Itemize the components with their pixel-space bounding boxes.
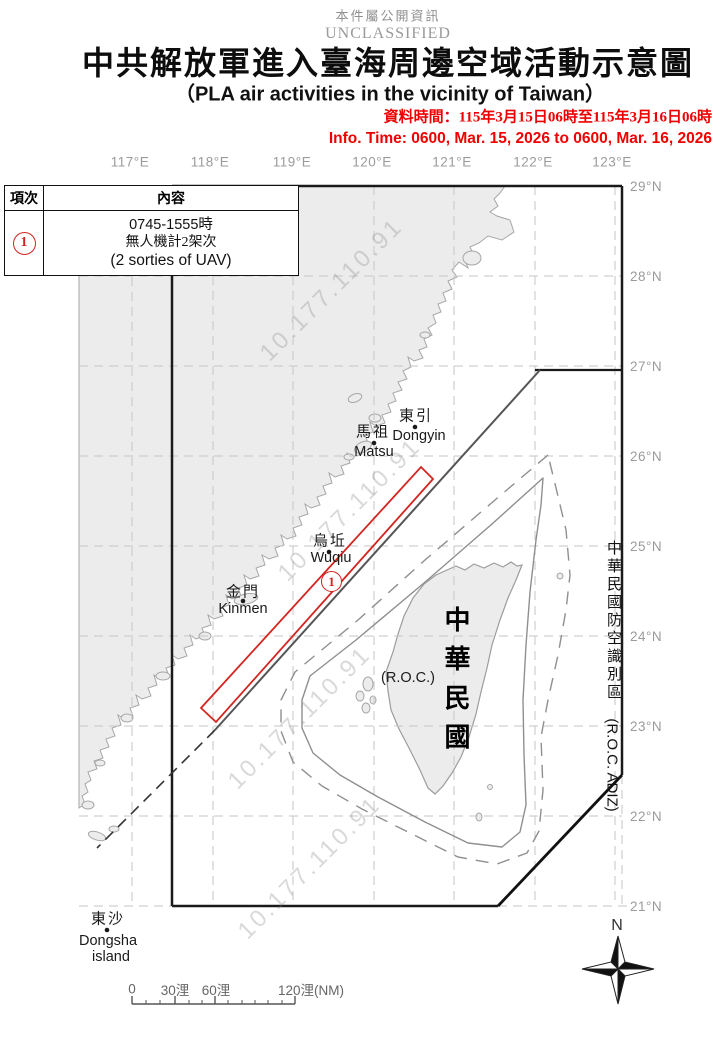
table-row-content: 0745-1555時 無人機計2架次 (2 sorties of UAV) bbox=[110, 216, 231, 271]
lat-label: 22°N bbox=[630, 809, 662, 824]
compass-north-label: N bbox=[611, 917, 623, 935]
screenshot-root: 10.177.110.91 10.177.110.91 10.177.110.9… bbox=[0, 0, 720, 1040]
page-title-en: （PLA air activities in the vicinity of T… bbox=[175, 78, 605, 107]
scale-label-120: 120浬(NM) bbox=[278, 979, 344, 999]
scale-label-60: 60浬 bbox=[202, 979, 231, 999]
kinmen-label-zh: 金門 bbox=[226, 581, 260, 602]
lat-label: 27°N bbox=[630, 359, 662, 374]
lat-label: 25°N bbox=[630, 539, 662, 554]
lat-label: 29°N bbox=[630, 179, 662, 194]
lon-label: 118°E bbox=[191, 155, 229, 170]
lat-label: 21°N bbox=[630, 899, 662, 914]
info-time-en: Info. Time: 0600, Mar. 15, 2026 to 0600,… bbox=[329, 130, 712, 148]
dongsha-label-en2: island bbox=[92, 949, 130, 965]
lat-label: 26°N bbox=[630, 449, 662, 464]
dongsha-label-zh: 東沙 bbox=[91, 908, 125, 929]
activity-desc-zh: 無人機計2架次 bbox=[110, 234, 231, 252]
lon-label: 119°E bbox=[273, 155, 311, 170]
wuqiu-label-en: Wuqiu bbox=[311, 550, 352, 566]
compass-rose-icon bbox=[582, 936, 654, 1004]
table-row-marker: 1 bbox=[13, 232, 36, 255]
lon-label: 122°E bbox=[513, 155, 552, 170]
lon-label: 120°E bbox=[352, 155, 391, 170]
lat-label: 28°N bbox=[630, 269, 662, 284]
matsu-label-en: Matsu bbox=[354, 444, 394, 460]
lat-label: 23°N bbox=[630, 719, 662, 734]
dongsha-label-en: Dongsha bbox=[79, 933, 137, 949]
table-header-no: 項次 bbox=[5, 186, 43, 211]
activity-desc-en: (2 sorties of UAV) bbox=[110, 251, 231, 270]
kinmen-label-en: Kinmen bbox=[218, 601, 267, 617]
wuqiu-label-zh: 烏坵 bbox=[313, 530, 347, 551]
taiwan-roc-label: (R.O.C.) bbox=[381, 670, 435, 686]
scale-label-0: 0 bbox=[128, 982, 136, 997]
dongyin-label-zh: 東引 bbox=[399, 405, 433, 426]
scale-label-30: 30浬 bbox=[161, 979, 190, 999]
taiwan-name-vertical: 中華民國 bbox=[437, 606, 474, 762]
activity-table: 項次 1 內容 0745-1555時 無人機計2架次 (2 sorties of… bbox=[4, 185, 299, 276]
info-time-zh: 資料時間：115年3月15日06時至115年3月16日06時 bbox=[384, 106, 712, 127]
dongyin-label-en: Dongyin bbox=[392, 428, 445, 444]
lat-label: 24°N bbox=[630, 629, 662, 644]
lon-label: 123°E bbox=[592, 155, 631, 170]
activity-time: 0745-1555時 bbox=[110, 216, 231, 234]
lon-label: 121°E bbox=[432, 155, 471, 170]
classification-banner-zh: 本件屬公開資訊 bbox=[335, 6, 440, 25]
adiz-label-zh: 中華民國防空識別區 bbox=[603, 540, 624, 702]
adiz-label-en: (R.O.C. ADIZ) bbox=[604, 718, 621, 811]
activity-marker-1: 1 bbox=[321, 571, 342, 592]
lon-label: 117°E bbox=[111, 155, 149, 170]
table-header-content: 內容 bbox=[44, 186, 298, 211]
matsu-label-zh: 馬祖 bbox=[356, 421, 390, 442]
